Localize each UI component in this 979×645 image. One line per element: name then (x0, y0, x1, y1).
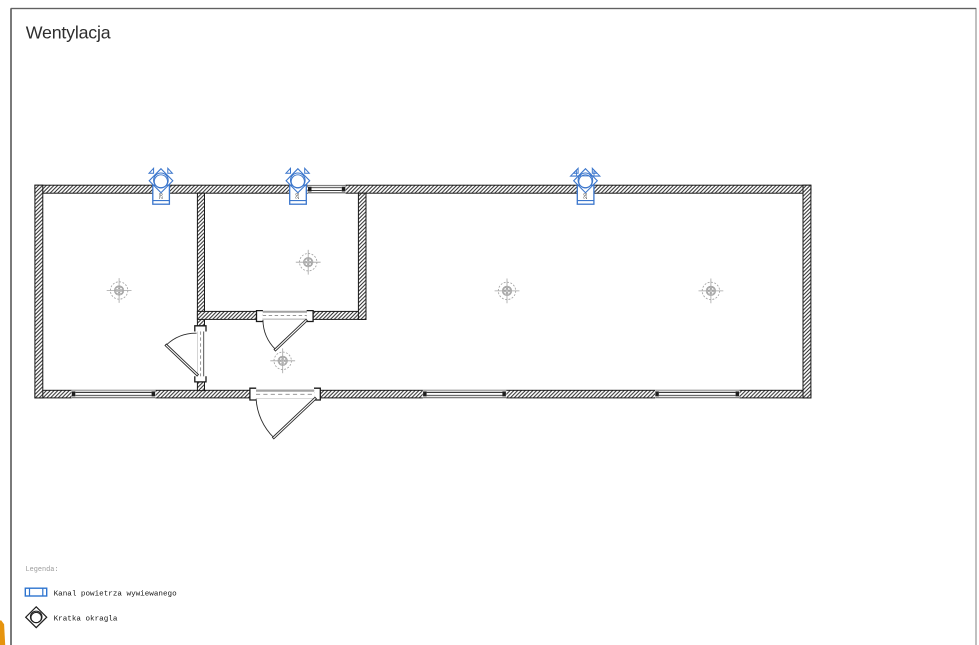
svg-text:Kanal powietrza wywiewanego: Kanal powietrza wywiewanego (54, 590, 177, 598)
svg-text:Legenda:: Legenda: (26, 566, 59, 574)
svg-text:Wentylacja: Wentylacja (26, 23, 111, 43)
svg-text:Kratka okragla: Kratka okragla (54, 615, 118, 623)
